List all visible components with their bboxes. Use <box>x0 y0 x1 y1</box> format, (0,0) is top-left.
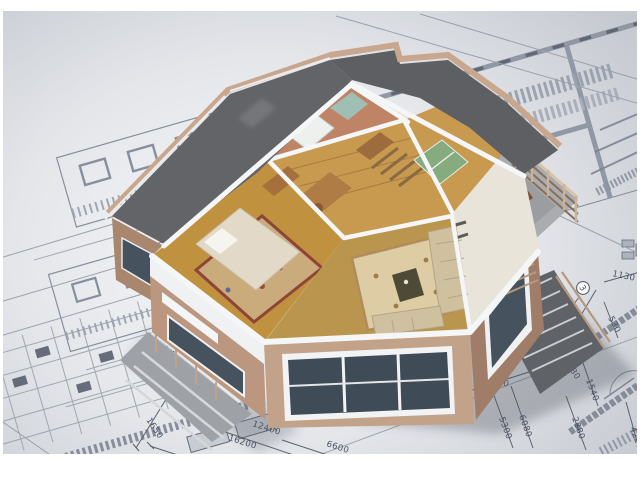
coffee-table-items <box>404 280 408 284</box>
grid-bubble-3: 3 <box>576 282 589 295</box>
photo-frame-bottom <box>0 454 640 480</box>
render-canvas: 16200 12400 6600 2300 1650 2100 5300 608… <box>0 0 640 480</box>
photo-frame-top <box>0 0 640 11</box>
architectural-render-photo: 16200 12400 6600 2300 1650 2100 5300 608… <box>0 0 640 480</box>
photo-frame-left <box>0 0 3 480</box>
